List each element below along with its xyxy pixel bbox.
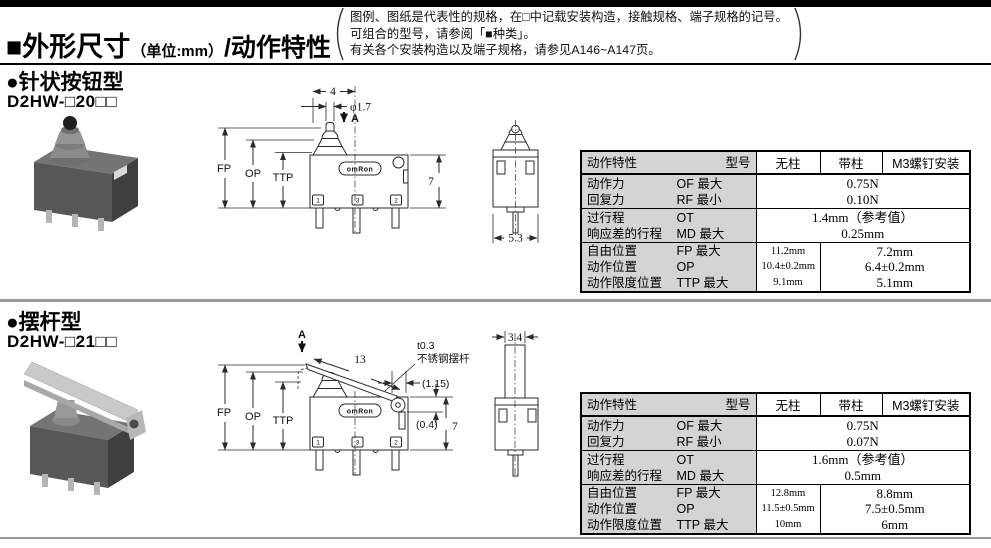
dim-3-4: 3.4 xyxy=(508,332,523,344)
value-fp-post: 8.8mm xyxy=(826,486,965,502)
point-a-label: A xyxy=(298,329,306,341)
value-rf: 0.10N xyxy=(762,192,965,208)
stroke-position-dimensions: FP OP TTP xyxy=(217,365,310,450)
terminal-2-label: 2 xyxy=(394,198,398,205)
value-of: 0.75N xyxy=(762,418,965,434)
row-label: 自由位置 xyxy=(587,485,677,501)
row-code: TTP 最大 xyxy=(677,517,751,533)
row-code: OP xyxy=(677,501,751,517)
table-title: 动作特性 xyxy=(587,397,669,413)
row-code: MD 最大 xyxy=(677,226,751,242)
ttp-label: TTP xyxy=(273,172,294,184)
left-parenthesis-icon xyxy=(331,7,345,61)
model-column-label: 型号 xyxy=(669,397,751,413)
spec-table-pin-type: 动作特性型号 无柱 带柱 M3螺钉安装 动作力OF 最大 回复力RF 最小 0.… xyxy=(580,150,971,293)
terminal-1-label: 1 xyxy=(316,440,320,447)
ttp-label: TTP xyxy=(273,415,294,427)
value-ot: 1.4mm（参考值） xyxy=(762,210,965,226)
row-label: 动作位置 xyxy=(587,501,677,517)
row-code: OF 最大 xyxy=(677,418,751,434)
col-header-with-post: 带柱 xyxy=(820,151,882,174)
note-line-2: 可组合的型号，请参阅「■种类」。 xyxy=(350,26,788,43)
lever-material-label: 不锈钢摆杆 xyxy=(417,352,470,365)
dim-7: 7 xyxy=(428,176,434,188)
section-divider xyxy=(0,299,991,302)
row-label: 过行程 xyxy=(587,452,677,468)
side-view: 5.3 xyxy=(493,120,538,245)
title-underline xyxy=(0,63,991,65)
value-fp-no-post: 11.2mm xyxy=(762,244,815,260)
col-header-with-post: 带柱 xyxy=(820,393,882,416)
title-main: ■外形尺寸 xyxy=(6,25,130,64)
page-bottom-rule xyxy=(0,537,991,539)
note-line-1: 图例、图纸是代表性的规格，在□中记载安装构造，接触规格、端子规格的记号。 xyxy=(350,9,788,26)
value-md: 0.5mm xyxy=(762,468,965,484)
value-ttp-no-post: 10mm xyxy=(762,517,815,533)
row-label: 动作力 xyxy=(587,176,677,192)
row-label: 响应差的行程 xyxy=(587,468,677,484)
row-code: OT xyxy=(677,452,751,468)
note-text: 图例、图纸是代表性的规格，在□中记载安装构造，接触规格、端子规格的记号。 可组合… xyxy=(350,9,788,59)
value-of: 0.75N xyxy=(762,176,965,192)
col-header-m3-screw: M3螺钉安装 xyxy=(882,393,970,416)
row-label: 动作力 xyxy=(587,418,677,434)
note-line-3: 有关各个安装构造以及端子规格，请参见A146~A147页。 xyxy=(350,42,788,59)
photo-plunger xyxy=(50,116,90,165)
op-label: OP xyxy=(245,168,261,180)
dim-13: 13 xyxy=(354,354,366,366)
col-header-no-post: 无柱 xyxy=(756,393,820,416)
side-view: 3.4 xyxy=(492,331,538,478)
dim-4: 4 xyxy=(330,86,336,98)
row-code: OT xyxy=(677,210,751,226)
dim-5-3: 5.3 xyxy=(508,233,523,245)
table-title: 动作特性 xyxy=(587,155,669,171)
terminal-3-label: 3 xyxy=(356,198,360,205)
value-op-post: 6.4±0.2mm xyxy=(826,259,965,275)
height-dimension: 7 xyxy=(410,155,446,208)
lever-thickness-label: t0.3 xyxy=(417,340,435,352)
col-header-m3-screw: M3螺钉安装 xyxy=(882,151,970,174)
header-note: 图例、图纸是代表性的规格，在□中记载安装构造，接触规格、端子规格的记号。 可组合… xyxy=(331,7,807,61)
row-code: FP 最大 xyxy=(677,485,751,501)
value-ttp-post: 5.1mm xyxy=(826,275,965,291)
row-code: FP 最大 xyxy=(677,243,751,259)
value-ttp-no-post: 9.1mm xyxy=(762,275,815,291)
row-code: OF 最大 xyxy=(677,176,751,192)
omron-logo: omRon xyxy=(347,167,374,174)
col-header-no-post: 无柱 xyxy=(756,151,820,174)
op-label: OP xyxy=(245,411,261,423)
fp-label: FP xyxy=(217,163,231,175)
row-label: 动作限度位置 xyxy=(587,517,677,533)
right-parenthesis-icon xyxy=(793,7,807,61)
terminal-1-label: 1 xyxy=(316,198,320,205)
row-label: 动作限度位置 xyxy=(587,275,677,291)
dim-7: 7 xyxy=(452,421,458,433)
value-md: 0.25mm xyxy=(762,226,965,242)
value-fp-no-post: 12.8mm xyxy=(762,486,815,502)
point-a-label: A xyxy=(351,113,359,125)
row-code: TTP 最大 xyxy=(677,275,751,291)
row-code: MD 最大 xyxy=(677,468,751,484)
value-op-post: 7.5±0.5mm xyxy=(826,501,965,517)
product-photo-lever-type xyxy=(18,348,186,500)
datasheet-page: ■外形尺寸 （单位:mm） /动作特性 图例、图纸是代表性的规格，在□中记载安装… xyxy=(0,0,991,548)
spec-table-lever-type: 动作特性型号 无柱 带柱 M3螺钉安装 动作力OF 最大 回复力RF 最小 0.… xyxy=(580,392,971,535)
value-ttp-post: 6mm xyxy=(826,517,965,533)
dim-diameter: φ1.7 xyxy=(350,102,371,114)
terminal-2-label: 2 xyxy=(394,440,398,447)
dimension-diagram-pin-type: FP OP TTP omRon 1 3 2 xyxy=(213,78,583,250)
dimension-diagram-lever-type: FP OP TTP omRon 1 3 2 xyxy=(213,325,583,495)
row-label: 回复力 xyxy=(587,434,677,450)
top-dimensions: 4 φ1.7 A xyxy=(301,86,371,125)
product-photo-pin-type xyxy=(24,110,184,232)
row-label: 动作位置 xyxy=(587,259,677,275)
value-rf: 0.07N xyxy=(762,434,965,450)
dim-0-4: (0.4) xyxy=(416,419,438,431)
value-ot: 1.6mm（参考值） xyxy=(762,452,965,468)
value-op-no-post: 11.5±0.5mm xyxy=(762,501,815,517)
fp-label: FP xyxy=(217,407,231,419)
row-label: 回复力 xyxy=(587,192,677,208)
row-label: 响应差的行程 xyxy=(587,226,677,242)
row-code: OP xyxy=(677,259,751,275)
top-black-bar xyxy=(0,0,991,7)
omron-logo: omRon xyxy=(347,409,374,416)
stroke-position-dimensions: FP OP TTP xyxy=(217,128,321,208)
value-op-no-post: 10.4±0.2mm xyxy=(762,259,815,275)
section1-model-number: D2HW-□20□□ xyxy=(7,92,117,112)
terminal-3-label: 3 xyxy=(356,440,360,447)
value-fp-post: 7.2mm xyxy=(826,244,965,260)
model-column-label: 型号 xyxy=(669,155,751,171)
row-label: 过行程 xyxy=(587,210,677,226)
title-suffix: /动作特性 xyxy=(224,28,331,64)
row-label: 自由位置 xyxy=(587,243,677,259)
row-code: RF 最小 xyxy=(677,434,751,450)
row-code: RF 最小 xyxy=(677,192,751,208)
page-title: ■外形尺寸 （单位:mm） /动作特性 xyxy=(6,25,331,64)
title-unit: （单位:mm） xyxy=(131,40,223,61)
